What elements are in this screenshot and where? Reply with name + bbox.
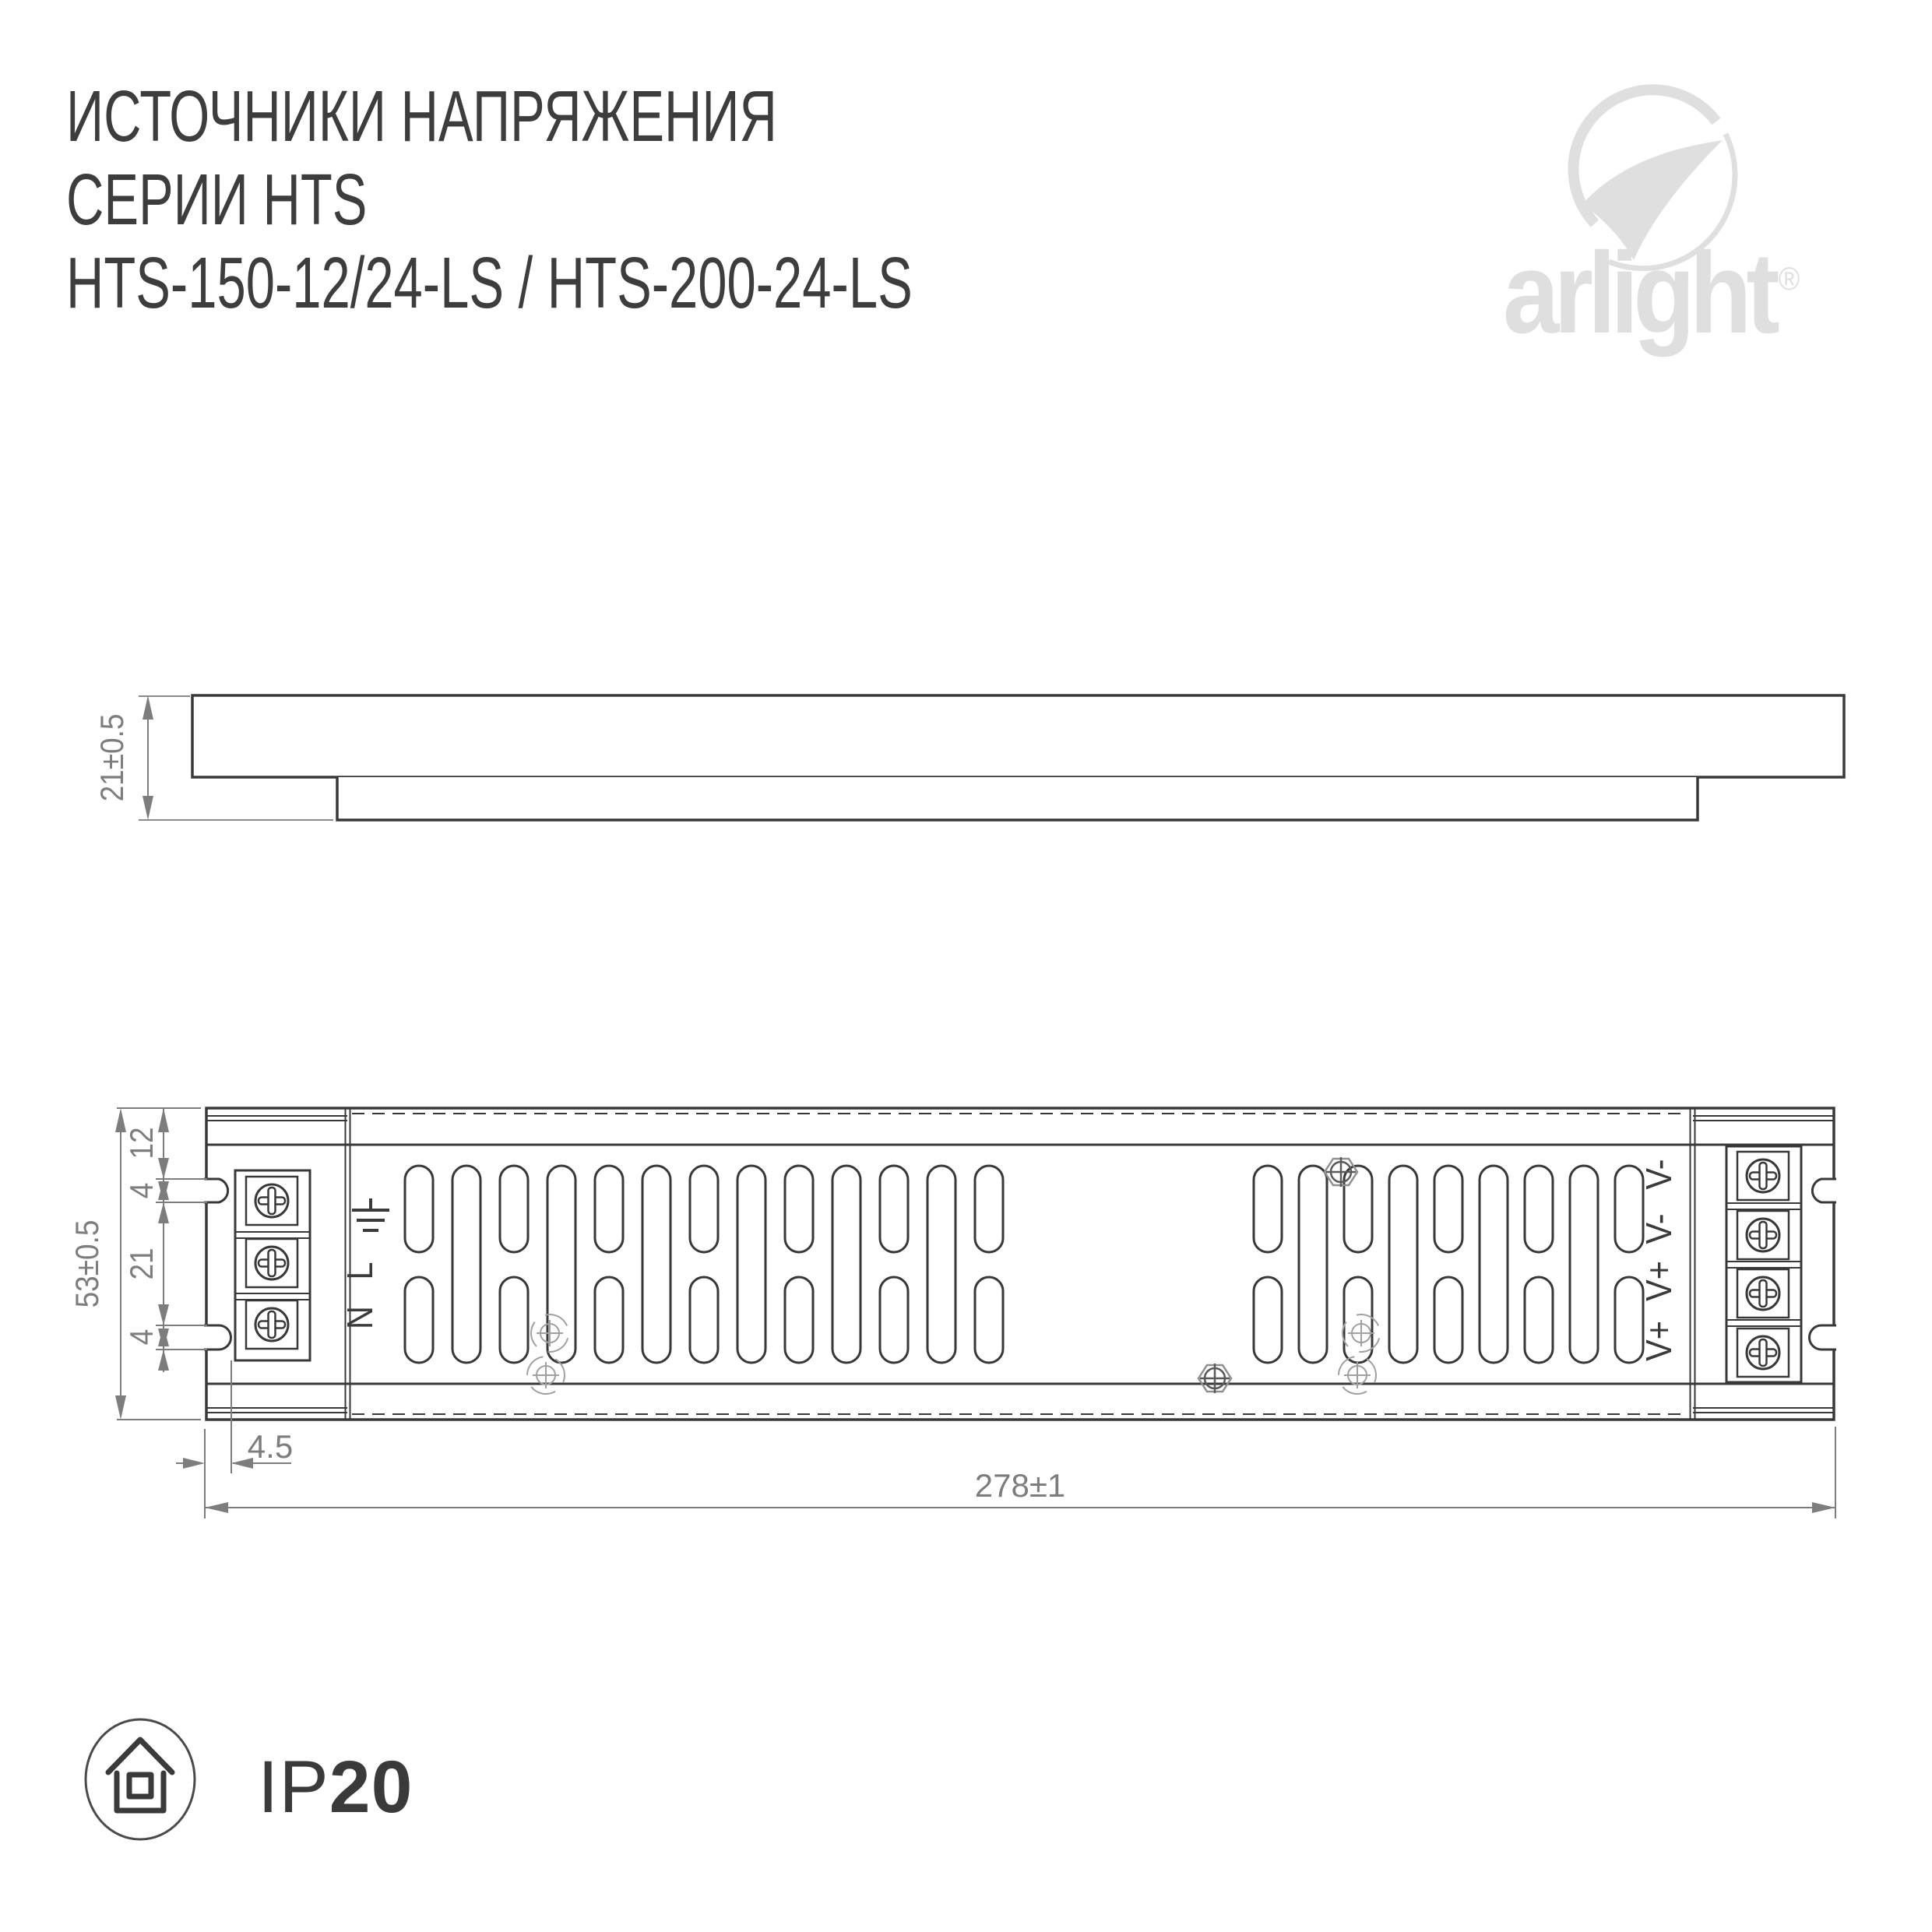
length-dim-label: 278±1	[975, 1467, 1065, 1504]
registered-mark: ®	[1779, 260, 1800, 297]
side-view-mounting-plate	[337, 777, 1698, 820]
arrow-up-icon	[158, 1350, 169, 1371]
side-view-case	[192, 695, 1844, 777]
arrow-down-icon	[158, 1158, 169, 1179]
input-label-N: N	[340, 1306, 381, 1329]
chain-dim-4b: 4	[124, 1329, 160, 1346]
chain-dim-12: 12	[124, 1127, 160, 1159]
arrow-down-icon	[158, 1304, 169, 1325]
side-height-dim-label: 21±0.5	[94, 714, 131, 802]
terminal-screws-input	[255, 1184, 288, 1341]
side-view: 21±0.5	[94, 695, 1844, 820]
title-block: ИСТОЧНИКИ НАПРЯЖЕНИЯ СЕРИИ HTS HTS-150-1…	[66, 75, 1241, 325]
terminal-screw-icon	[1747, 1160, 1779, 1192]
ip-rating-value: 20	[329, 1746, 413, 1828]
page-title-line2: СЕРИИ HTS	[66, 158, 913, 241]
mounting-notch	[204, 1179, 228, 1202]
ip-rating-prefix: IP	[258, 1746, 329, 1828]
terminal-screw-icon	[1747, 1219, 1779, 1251]
arrow-up-icon	[158, 1202, 169, 1223]
arrow-up-icon	[143, 695, 153, 720]
arrow-right-icon	[1812, 1502, 1835, 1513]
terminal-screw-icon	[1747, 1277, 1779, 1310]
chain-dim-4a: 4	[124, 1183, 160, 1199]
mounting-notch	[1812, 1179, 1836, 1202]
terminal-screw-icon	[255, 1247, 288, 1279]
input-label-L: L	[340, 1262, 381, 1279]
page-title-line3: HTS-150-12/24-LS / HTS-200-24-LS	[66, 241, 913, 325]
arrow-down-icon	[115, 1395, 126, 1420]
terminal-screw-icon	[1747, 1336, 1779, 1369]
output-label-1: V-	[1639, 1159, 1680, 1189]
mounting-notch	[204, 1325, 231, 1350]
ip20-badge-icon	[86, 1719, 195, 1839]
arrow-left-icon	[205, 1502, 228, 1513]
brand-logotype: arlight®	[1503, 227, 1800, 360]
top-view-body	[206, 1108, 1834, 1420]
output-label-3: V+	[1639, 1261, 1680, 1301]
overall-height-dim-label: 53±0.5	[69, 1220, 106, 1308]
brand-name: arlight	[1503, 229, 1775, 357]
page-title-line1: ИСТОЧНИКИ НАПРЯЖЕНИЯ	[66, 75, 913, 158]
ip-rating: IP20	[258, 1751, 413, 1825]
notch-depth-dim-label: 4.5	[248, 1428, 293, 1465]
top-view: L N V- V- V+ V+	[69, 1108, 1836, 1519]
terminal-screw-icon	[255, 1308, 288, 1341]
output-label-2: V-	[1639, 1213, 1680, 1244]
arrow-right-icon	[183, 1458, 205, 1469]
house-icon	[108, 1740, 172, 1811]
output-terminal-block	[1726, 1146, 1801, 1382]
input-terminal-block	[235, 1170, 310, 1360]
arrow-down-icon	[143, 796, 153, 820]
datasheet-page: 21±0.5	[0, 0, 1932, 1932]
output-label-4: V+	[1639, 1321, 1680, 1361]
mounting-notch	[1810, 1325, 1837, 1350]
terminal-screw-icon	[255, 1184, 288, 1217]
chain-dim-21: 21	[124, 1248, 160, 1279]
